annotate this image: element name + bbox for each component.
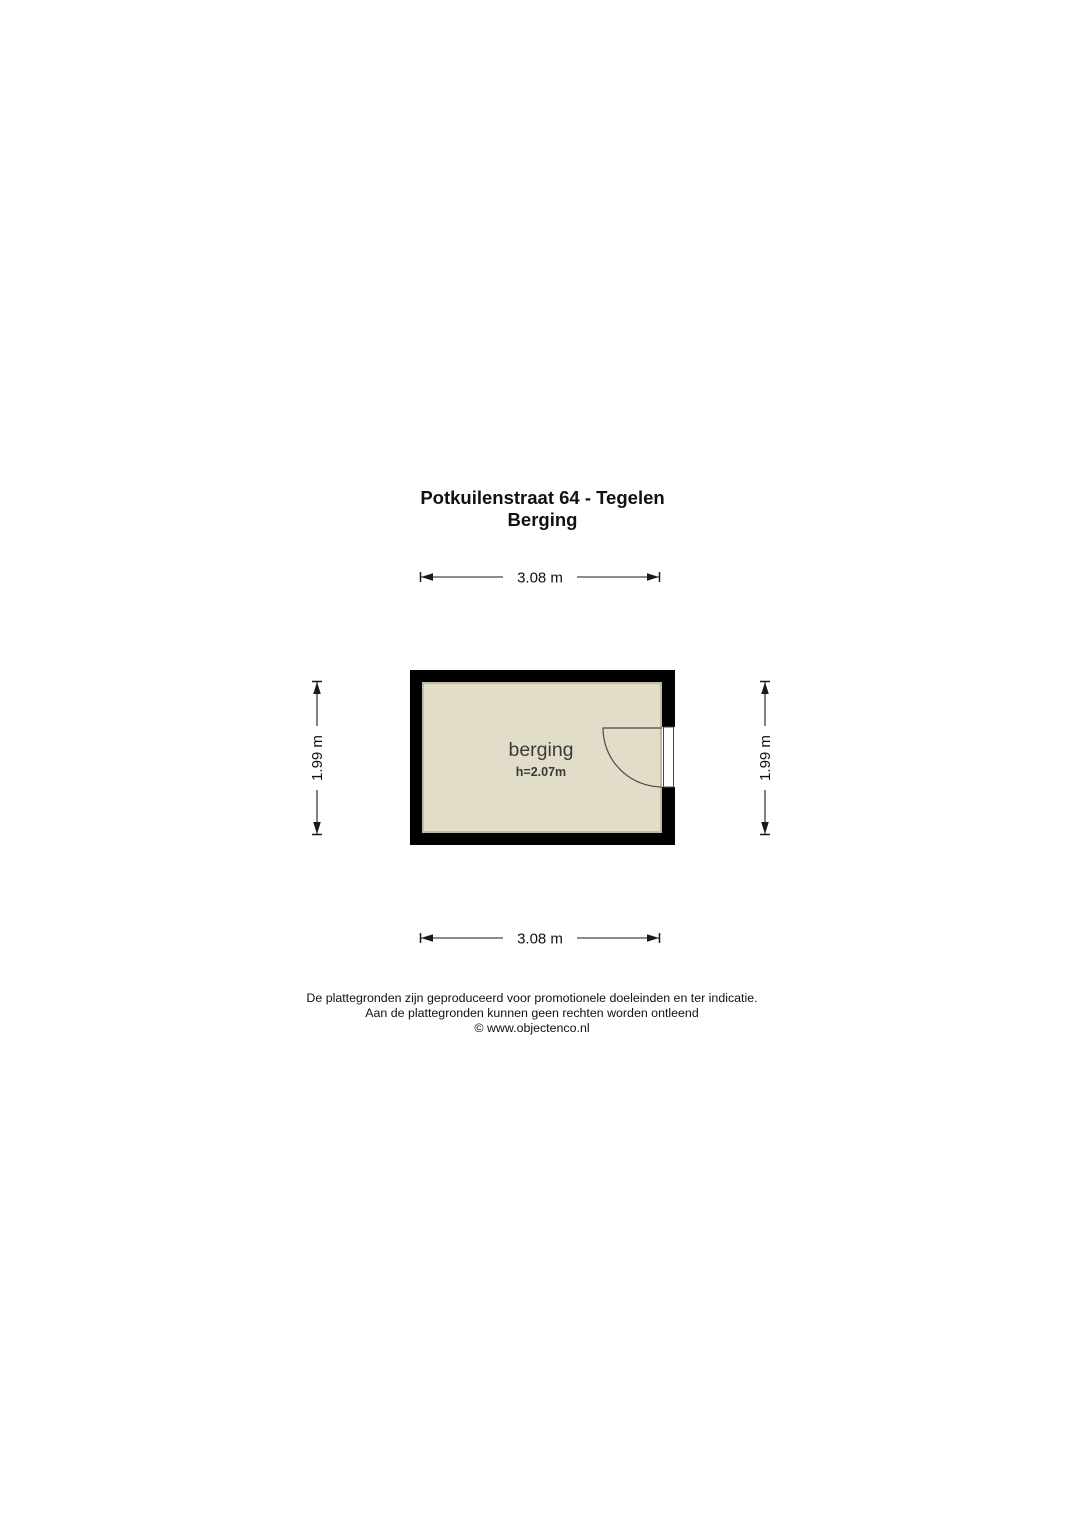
door-jamb-top xyxy=(662,722,675,727)
arrow-left-icon xyxy=(421,573,433,581)
dimension-label: 3.08 m xyxy=(517,570,563,587)
dimension-bottom: 3.08 m xyxy=(420,930,660,948)
copyright-line: © www.objectenco.nl xyxy=(0,1021,1064,1036)
arrow-up-icon xyxy=(761,682,769,694)
dimension-top: 3.08 m xyxy=(420,569,660,587)
arrow-down-icon xyxy=(761,822,769,834)
disclaimer-line-1: De plattegronden zijn geproduceerd voor … xyxy=(0,991,1064,1006)
door-leaf xyxy=(664,727,674,787)
arrow-down-icon xyxy=(313,822,321,834)
arrow-right-icon xyxy=(647,573,659,581)
room-name-label: berging xyxy=(508,739,573,761)
dimension-left: 1.99 m xyxy=(309,681,327,835)
floorplan-canvas: 3.08 m 3.08 m 1.99 m xyxy=(0,0,1080,1527)
dimension-label: 1.99 m xyxy=(757,735,774,781)
floorplan-page: Potkuilenstraat 64 - Tegelen Berging 3.0… xyxy=(0,0,1080,1527)
disclaimer: De plattegronden zijn geproduceerd voor … xyxy=(0,991,1064,1037)
arrow-left-icon xyxy=(421,934,433,942)
disclaimer-line-2: Aan de plattegronden kunnen geen rechten… xyxy=(0,1006,1064,1021)
dimension-label: 3.08 m xyxy=(517,931,563,948)
arrow-right-icon xyxy=(647,934,659,942)
arrow-up-icon xyxy=(313,682,321,694)
door-jamb-bottom xyxy=(662,787,675,792)
dimension-right: 1.99 m xyxy=(757,681,775,835)
dimension-label: 1.99 m xyxy=(309,735,326,781)
room-ceiling-height-label: h=2.07m xyxy=(516,765,566,779)
